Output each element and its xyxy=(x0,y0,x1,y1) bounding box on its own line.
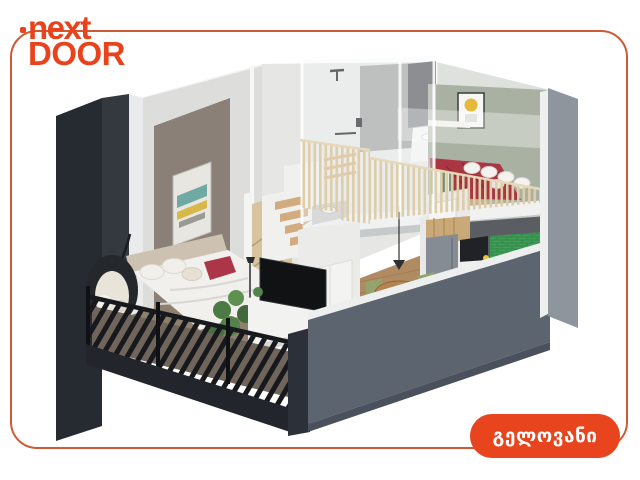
apartment-render xyxy=(0,0,640,480)
location-badge-label: გელოვანი xyxy=(493,425,598,447)
logo-line-2: DOOR xyxy=(28,41,125,67)
corner-post xyxy=(288,328,310,436)
page-root: { "card": { "background": "#ffffff", "bo… xyxy=(0,0,640,480)
logo-dot xyxy=(20,27,26,33)
location-badge[interactable]: გელოვანი xyxy=(470,414,620,458)
abstract-painting-frame xyxy=(173,162,211,246)
nextdoor-logo: next DOOR xyxy=(28,14,125,67)
